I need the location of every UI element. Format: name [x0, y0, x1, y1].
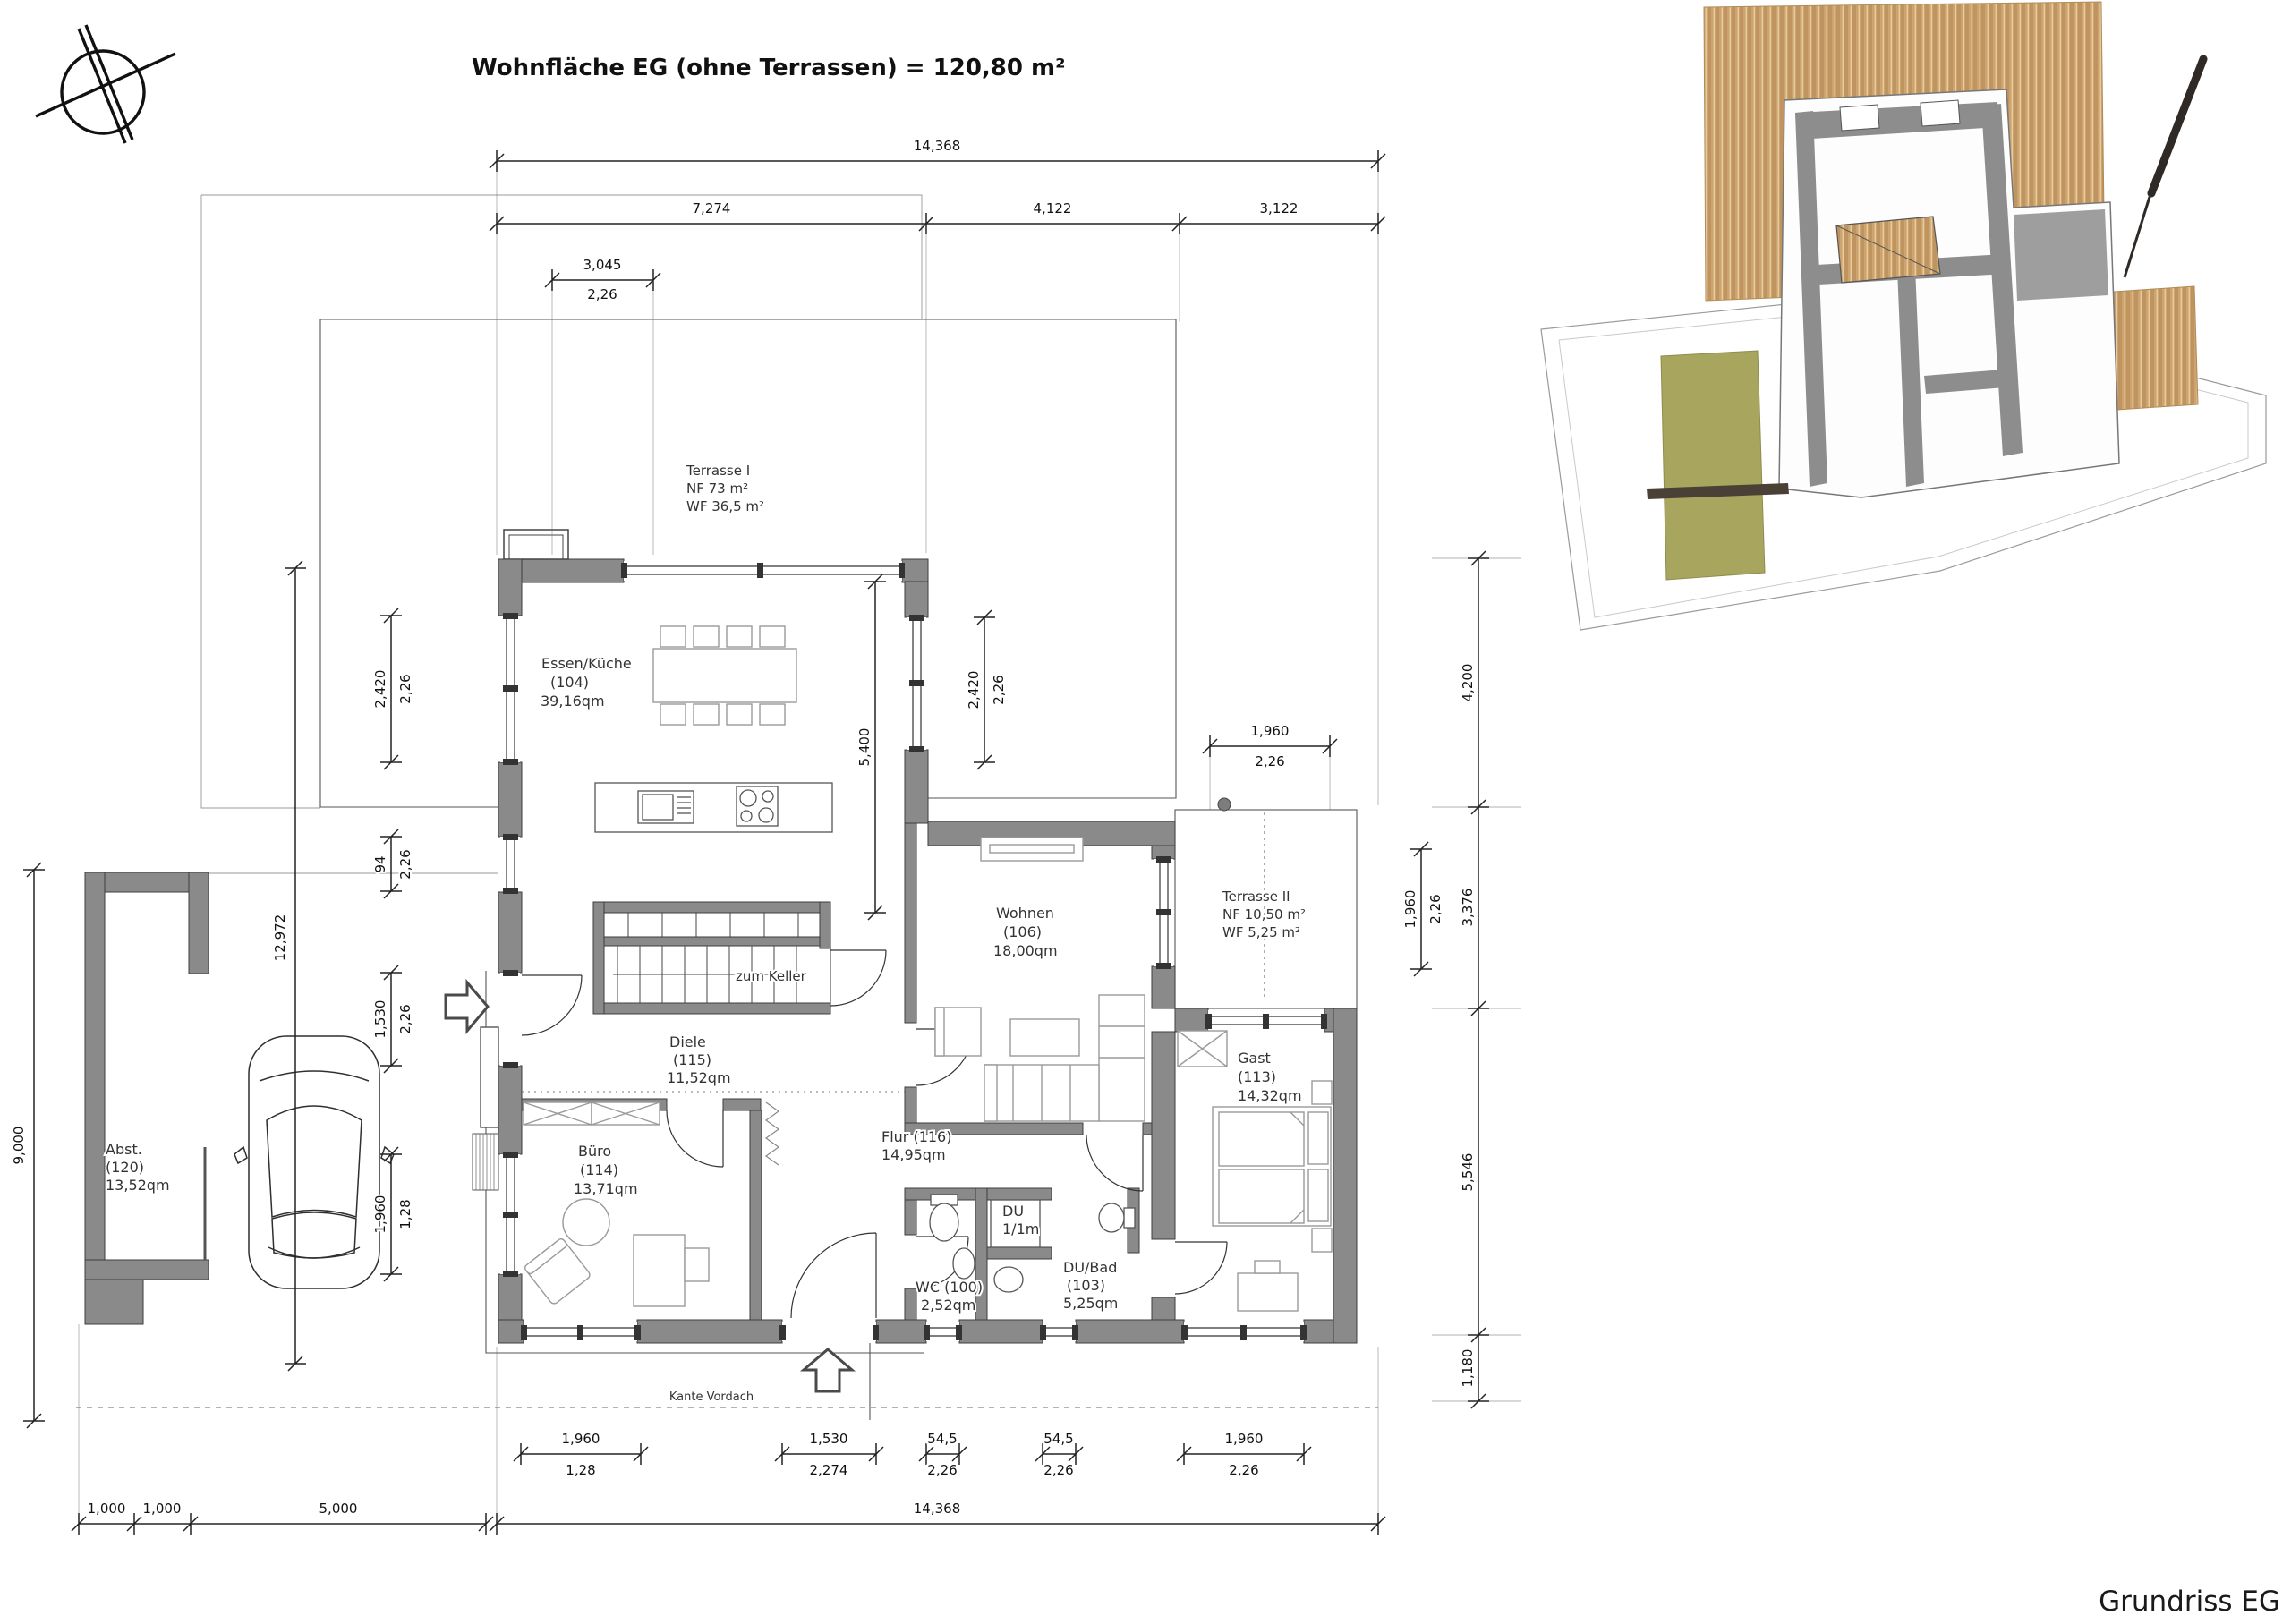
room-wohnen-area: 18,00qm [993, 942, 1058, 959]
room-flur-name: Flur (116) [881, 1128, 951, 1145]
room-terrasse1-nf: NF 73 m² [686, 480, 748, 497]
room-dubad-name: DU/Bad [1063, 1259, 1117, 1276]
room-terrasse1-name: Terrasse I [686, 463, 750, 479]
room-du-size: 1/1m [1002, 1220, 1039, 1237]
room-abst-name: Abst. [106, 1141, 142, 1158]
room-wohnen-number: (106) [1003, 923, 1042, 940]
dim-b1: 1,000 [88, 1501, 126, 1517]
north-arrow-icon [36, 25, 175, 143]
dim-sw1-h: 1,28 [566, 1462, 595, 1478]
dim-w3: 3,122 [1260, 200, 1299, 217]
staircase: zum Keller [593, 902, 886, 1014]
room-dubad-number: (103) [1067, 1277, 1105, 1294]
room-du-name: DU [1002, 1203, 1024, 1220]
dim-ww1-h: 2,26 [397, 674, 413, 703]
room-buero-number: (114) [580, 1161, 618, 1178]
dim-r1: 4,200 [1460, 664, 1476, 702]
dim-sw5: 1,960 [1225, 1431, 1264, 1447]
dim-r2: 3,376 [1460, 889, 1476, 927]
room-wohnen-name: Wohnen [996, 905, 1054, 922]
dim-ew1-h: 2,26 [991, 675, 1007, 704]
dim-sw4: 54,5 [1043, 1431, 1073, 1447]
dim-ew1: 2,420 [966, 671, 982, 710]
dim-left-9000: 9,000 [11, 1127, 27, 1165]
dim-total-width: 14,368 [914, 138, 961, 154]
room-terrasse1-wf: WF 36,5 m² [686, 498, 764, 514]
dim-w2: 4,122 [1034, 200, 1072, 217]
entrance-arrow-south [804, 1349, 852, 1391]
kitchen-island [595, 783, 832, 832]
room-gast-number: (113) [1238, 1068, 1276, 1085]
room-wc-area: 2,52qm [921, 1297, 975, 1314]
dim-left-12972: 12,972 [272, 914, 288, 962]
dim-interior-5400: 5,400 [856, 728, 873, 767]
dim-t2-h: 2,26 [1255, 753, 1284, 769]
dim-ww3-h: 2,26 [397, 1004, 413, 1033]
dim-b4: 14,368 [914, 1501, 961, 1517]
dim-sw1: 1,960 [562, 1431, 600, 1447]
dim-sw5-h: 2,26 [1229, 1462, 1258, 1478]
stair-annotation: zum Keller [736, 968, 807, 984]
dim-ww2: 94 [372, 855, 388, 872]
plan-name: Grundriss EG [2099, 1586, 2280, 1618]
dim-sw2-h: 2,274 [810, 1462, 848, 1478]
room-kueche-area: 39,16qm [541, 693, 605, 710]
render-3d-view [1541, 2, 2266, 630]
dim-r3: 5,546 [1460, 1153, 1476, 1192]
floor-plan-drawing: Wohnfläche EG (ohne Terrassen) = 120,80 … [0, 0, 2291, 1624]
dim-sw3-h: 2,26 [927, 1462, 957, 1478]
dim-sw3: 54,5 [927, 1431, 957, 1447]
dim-sw4-h: 2,26 [1043, 1462, 1073, 1478]
coat-rack [766, 1102, 779, 1165]
dim-rs: 1,960 [1402, 890, 1418, 929]
room-kueche-name: Essen/Küche [541, 655, 632, 672]
room-diele-number: (115) [673, 1051, 711, 1068]
room-abst-area: 13,52qm [106, 1177, 170, 1194]
dim-sw2: 1,530 [810, 1431, 848, 1447]
car-top-view [234, 1036, 394, 1288]
dim-rs-h: 2,26 [1427, 894, 1444, 923]
living-room-set [935, 838, 1145, 1121]
office-set [524, 1102, 709, 1306]
dim-b2: 1,000 [143, 1501, 182, 1517]
room-wc-name: WC (100) [916, 1279, 983, 1296]
room-flur-area: 14,95qm [881, 1146, 946, 1163]
dim-ww1: 2,420 [372, 670, 388, 709]
room-buero-name: Büro [578, 1143, 611, 1160]
dining-set [653, 626, 796, 725]
carport-storage [85, 872, 209, 1324]
dim-ww3: 1,530 [372, 1000, 388, 1039]
room-diele-name: Diele [669, 1033, 706, 1050]
dim-w1: 7,274 [693, 200, 731, 217]
dim-ww2-h: 2,26 [397, 849, 413, 879]
room-terrasse2-nf: NF 10,50 m² [1222, 906, 1306, 923]
room-dubad-area: 5,25qm [1063, 1295, 1118, 1312]
dim-b3: 5,000 [319, 1501, 358, 1517]
dim-r4: 1,180 [1460, 1349, 1476, 1388]
room-abst-number: (120) [106, 1159, 144, 1176]
dim-ww4-h: 1,28 [397, 1199, 413, 1229]
entry-details [473, 1027, 498, 1190]
dim-sub-top: 3,045 [583, 257, 622, 273]
canopy-edge-label: Kante Vordach [669, 1390, 754, 1404]
room-terrasse2-name: Terrasse II [1222, 889, 1290, 905]
room-gast-name: Gast [1238, 1050, 1271, 1067]
entrance-arrow-west [446, 982, 488, 1031]
dim-t2: 1,960 [1251, 723, 1290, 739]
room-buero-area: 13,71qm [574, 1180, 638, 1197]
room-gast-area: 14,32qm [1238, 1087, 1302, 1104]
floor-plan-sheet: Wohnfläche EG (ohne Terrassen) = 120,80 … [0, 0, 2291, 1624]
dim-ww4: 1,960 [372, 1195, 388, 1234]
room-terrasse2-wf: WF 5,25 m² [1222, 924, 1300, 940]
room-kueche-number: (104) [550, 674, 589, 691]
room-diele-area: 11,52qm [667, 1069, 731, 1086]
sheet-title: Wohnfläche EG (ohne Terrassen) = 120,80 … [472, 55, 1066, 81]
dim-sub-top-h: 2,26 [587, 286, 617, 302]
